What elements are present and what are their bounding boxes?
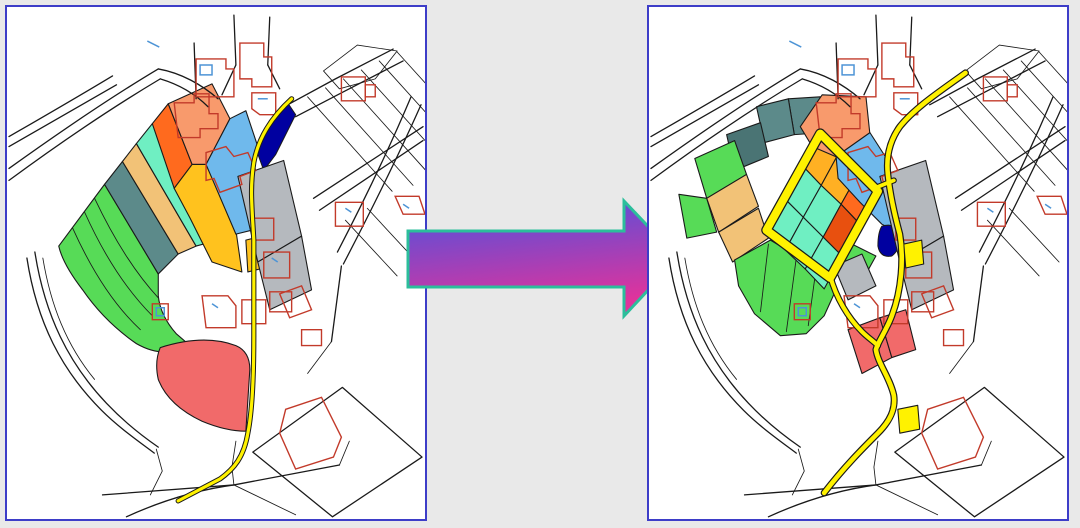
road-stub-2 [898,405,920,433]
after-parcels [679,95,916,374]
before-map-svg [7,7,425,519]
figure-canvas: { "figure": { "kind": "before-after map … [0,0,1080,528]
parcel-red-blob [157,340,250,431]
road-stub-1 [904,240,924,268]
after-map-panel [647,5,1069,521]
arrow-shape [408,201,678,316]
after-map-svg [649,7,1067,519]
before-map-panel [5,5,427,521]
transformation-arrow [404,195,684,325]
arrow-svg [404,195,684,325]
